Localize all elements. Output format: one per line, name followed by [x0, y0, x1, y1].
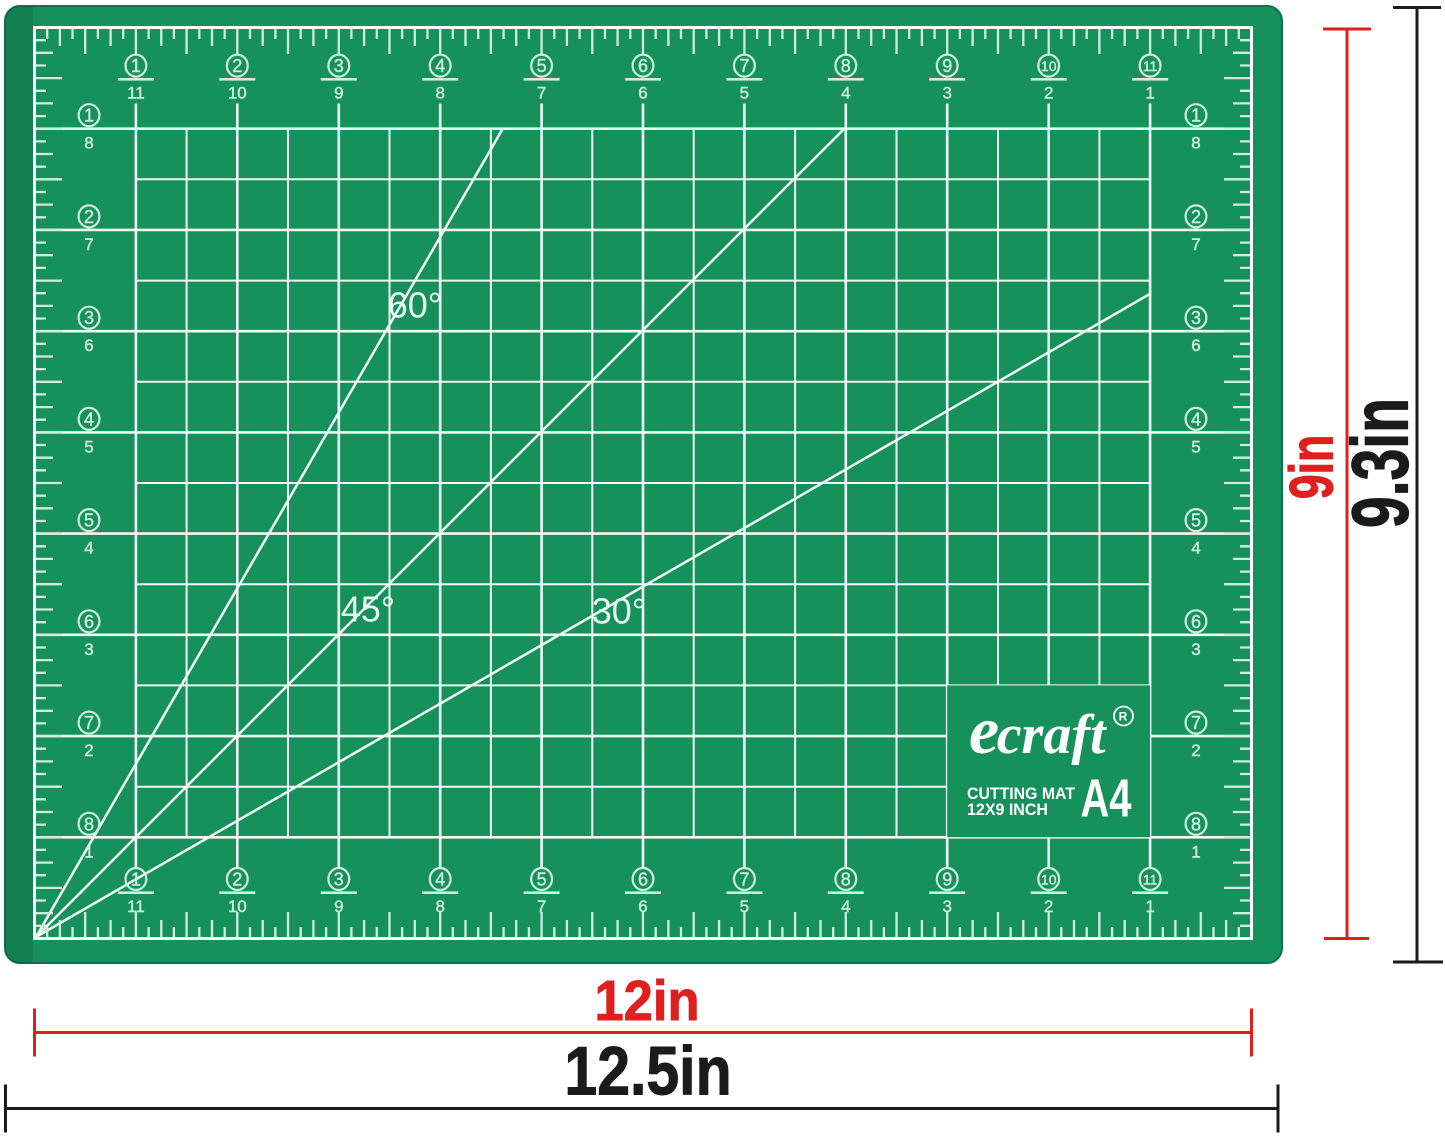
- svg-text:12in: 12in: [594, 969, 699, 1032]
- svg-text:6: 6: [84, 612, 94, 632]
- svg-text:2: 2: [84, 741, 93, 760]
- svg-text:2: 2: [1191, 741, 1200, 760]
- svg-text:2: 2: [1191, 207, 1201, 227]
- svg-text:ecraft: ecraft: [969, 692, 1107, 768]
- svg-text:12X9 INCH: 12X9 INCH: [967, 801, 1048, 819]
- svg-text:10: 10: [228, 84, 247, 103]
- svg-text:45°: 45°: [341, 589, 395, 630]
- svg-text:11: 11: [1143, 872, 1158, 888]
- svg-text:5: 5: [537, 870, 547, 890]
- svg-text:7: 7: [84, 235, 93, 254]
- svg-text:8: 8: [841, 870, 851, 890]
- svg-text:9: 9: [942, 870, 952, 890]
- svg-text:3: 3: [84, 308, 94, 328]
- svg-text:6: 6: [638, 84, 647, 103]
- svg-text:7: 7: [537, 84, 546, 103]
- svg-text:1: 1: [84, 106, 94, 126]
- svg-text:7: 7: [84, 713, 94, 733]
- svg-text:9.3in: 9.3in: [1335, 398, 1425, 528]
- svg-text:10: 10: [1041, 58, 1057, 74]
- svg-text:1: 1: [1145, 84, 1154, 103]
- svg-text:10: 10: [228, 897, 247, 916]
- svg-text:8: 8: [84, 814, 94, 834]
- svg-text:3: 3: [334, 870, 344, 890]
- svg-text:3: 3: [1191, 308, 1201, 328]
- svg-text:11: 11: [127, 84, 145, 103]
- svg-text:5: 5: [740, 84, 749, 103]
- svg-text:2: 2: [1044, 897, 1053, 916]
- svg-text:9: 9: [334, 84, 343, 103]
- svg-text:7: 7: [537, 897, 546, 916]
- svg-text:12.5in: 12.5in: [564, 1032, 731, 1109]
- svg-text:5: 5: [84, 437, 93, 456]
- svg-text:6: 6: [638, 56, 648, 76]
- svg-text:1: 1: [84, 842, 93, 861]
- svg-text:6: 6: [1191, 612, 1201, 632]
- svg-text:7: 7: [739, 870, 749, 890]
- svg-text:1: 1: [1191, 106, 1201, 126]
- svg-text:2: 2: [1044, 84, 1053, 103]
- svg-text:6: 6: [638, 897, 647, 916]
- svg-text:9: 9: [334, 897, 343, 916]
- svg-text:4: 4: [841, 84, 850, 103]
- svg-text:5: 5: [84, 511, 94, 531]
- svg-text:8: 8: [1191, 814, 1201, 834]
- svg-text:3: 3: [334, 56, 344, 76]
- svg-text:8: 8: [1191, 134, 1200, 153]
- svg-text:6: 6: [84, 336, 93, 355]
- svg-text:2: 2: [84, 207, 94, 227]
- svg-text:1: 1: [131, 56, 141, 76]
- svg-text:2: 2: [232, 870, 242, 890]
- svg-text:4: 4: [435, 870, 445, 890]
- svg-text:8: 8: [84, 134, 93, 153]
- svg-text:1: 1: [1191, 842, 1200, 861]
- svg-text:R: R: [1119, 710, 1128, 724]
- svg-text:4: 4: [435, 56, 445, 76]
- svg-text:11: 11: [127, 897, 145, 916]
- svg-text:9: 9: [942, 56, 952, 76]
- svg-text:6: 6: [638, 870, 648, 890]
- svg-text:7: 7: [1191, 713, 1201, 733]
- svg-text:30°: 30°: [592, 591, 646, 632]
- svg-text:3: 3: [1191, 640, 1200, 659]
- svg-text:3: 3: [84, 640, 93, 659]
- svg-text:8: 8: [435, 84, 444, 103]
- svg-text:2: 2: [232, 56, 242, 76]
- svg-text:3: 3: [942, 897, 951, 916]
- svg-text:7: 7: [739, 56, 749, 76]
- svg-text:1: 1: [131, 870, 141, 890]
- svg-text:7: 7: [1191, 235, 1200, 254]
- svg-text:5: 5: [537, 56, 547, 76]
- svg-text:8: 8: [841, 56, 851, 76]
- svg-text:4: 4: [1191, 539, 1200, 558]
- svg-text:11: 11: [1143, 58, 1158, 74]
- svg-text:5: 5: [740, 897, 749, 916]
- svg-text:4: 4: [84, 409, 94, 429]
- svg-text:3: 3: [942, 84, 951, 103]
- svg-text:6: 6: [1191, 336, 1200, 355]
- svg-text:4: 4: [841, 897, 850, 916]
- svg-text:10: 10: [1041, 872, 1057, 888]
- svg-text:5: 5: [1191, 437, 1200, 456]
- svg-text:5: 5: [1191, 511, 1201, 531]
- svg-text:4: 4: [84, 539, 93, 558]
- svg-text:1: 1: [1145, 897, 1154, 916]
- svg-text:4: 4: [1191, 409, 1201, 429]
- svg-text:60°: 60°: [388, 285, 442, 326]
- svg-text:8: 8: [435, 897, 444, 916]
- svg-text:A4: A4: [1081, 769, 1132, 829]
